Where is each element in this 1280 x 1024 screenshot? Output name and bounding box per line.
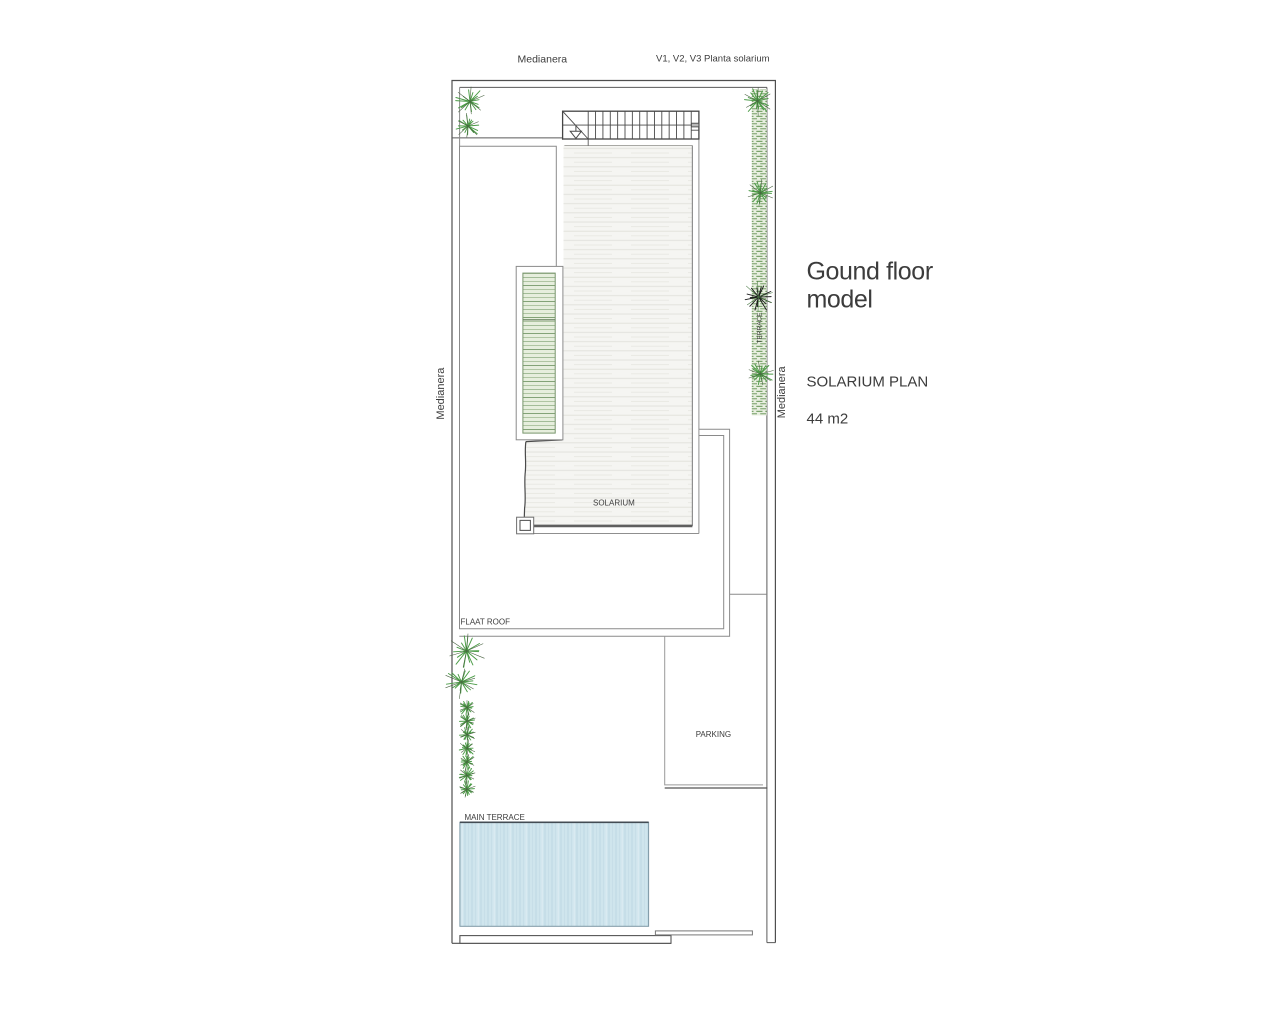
svg-text:FLAAT ROOF: FLAAT ROOF	[461, 617, 511, 626]
svg-text:PARKING: PARKING	[696, 730, 731, 739]
svg-text:V1, V2, V3 Planta solarium: V1, V2, V3 Planta solarium	[656, 54, 770, 65]
svg-text:Medianera: Medianera	[518, 54, 568, 66]
svg-text:Gound floor: Gound floor	[807, 258, 933, 286]
svg-text:44 m2: 44 m2	[807, 411, 849, 428]
svg-text:MAIN TERRACE: MAIN TERRACE	[465, 813, 525, 822]
svg-text:Medianera: Medianera	[435, 367, 447, 420]
svg-text:SOLARIUM PLAN: SOLARIUM PLAN	[807, 374, 929, 391]
svg-text:model: model	[807, 286, 873, 314]
svg-text:SOLARIUM: SOLARIUM	[593, 499, 635, 508]
svg-text:TERRACE: TERRACE	[757, 312, 764, 344]
svg-text:Medianera: Medianera	[776, 365, 788, 418]
